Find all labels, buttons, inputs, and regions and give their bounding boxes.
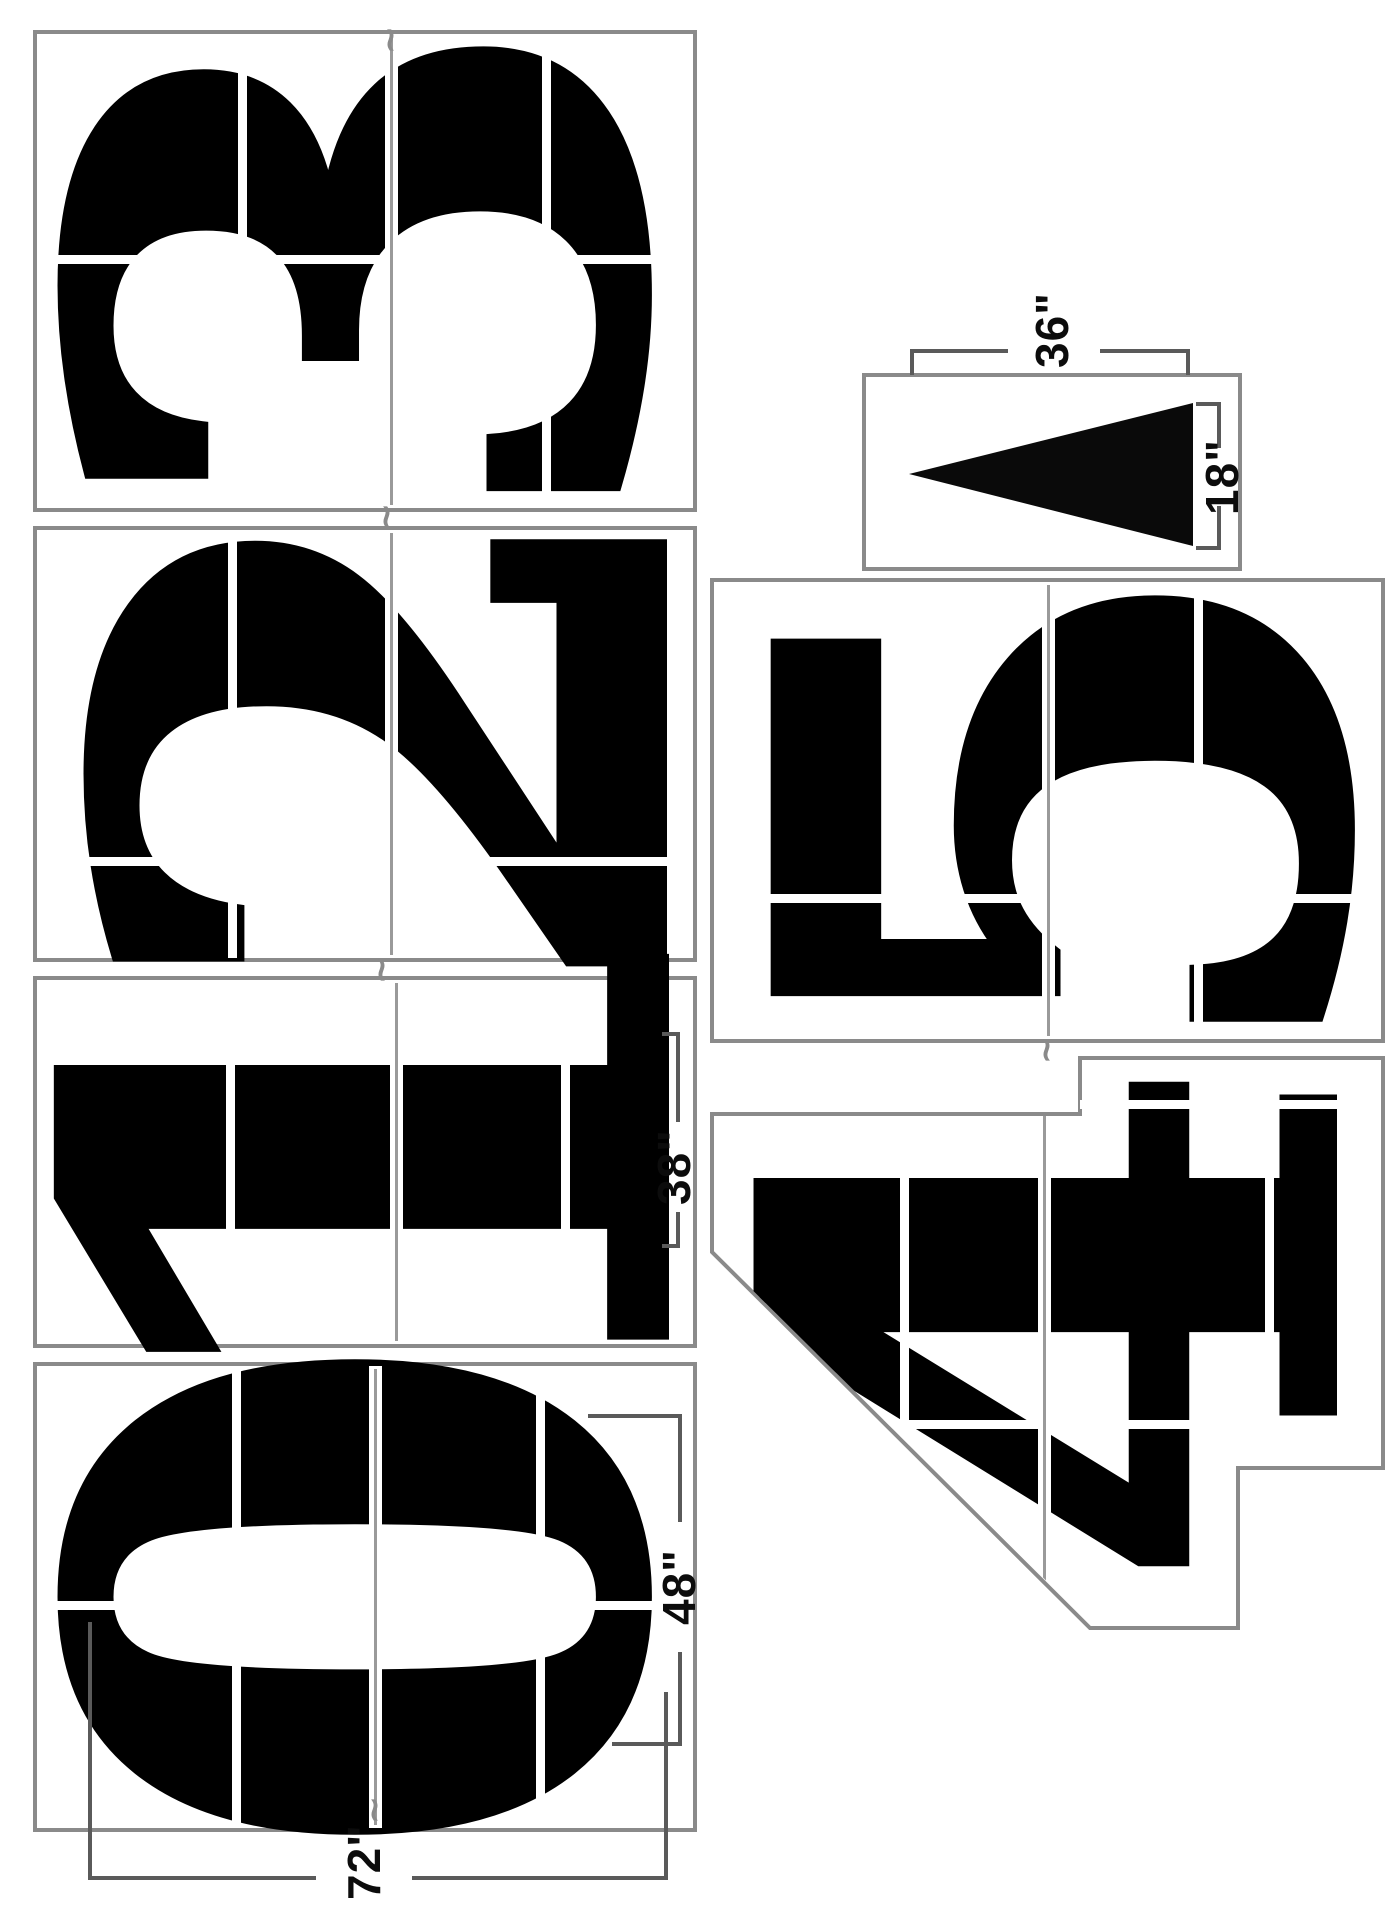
dim-label-numeral-1-width: 38" xyxy=(647,1129,701,1205)
registration-mark: ~ xyxy=(354,1796,394,1825)
stencil-panel-4: 4 xyxy=(710,1056,1385,1632)
dim-label-arrow-length: 36" xyxy=(1025,292,1079,368)
dim-ext-48 xyxy=(588,1414,682,1418)
dim-line-36 xyxy=(1100,349,1190,353)
stencil-bridge-gap xyxy=(226,980,235,1344)
stencil-bridge-gap xyxy=(37,1601,693,1610)
dim-line-38 xyxy=(676,1032,680,1122)
fold-line xyxy=(390,37,393,505)
stencil-panel-5: 5 xyxy=(710,578,1385,1043)
dim-line-48 xyxy=(678,1414,682,1522)
dim-label-arrow-base: 18" xyxy=(1195,439,1249,515)
dim-tick xyxy=(662,1244,680,1248)
stencil-bridge-gap xyxy=(238,34,247,508)
dim-label-numeral-0-width: 48" xyxy=(652,1549,706,1625)
dim-line-38 xyxy=(676,1212,680,1248)
dim-line-36 xyxy=(910,349,1008,353)
stencil-bridge-gap xyxy=(536,1366,545,1828)
stencil-bridge-gap xyxy=(232,1366,241,1828)
stencil-panel-0: 0 xyxy=(33,1362,697,1832)
stencil-kit-diagram: 3 2 1 0 5 xyxy=(0,0,1400,1924)
dim-line-72 xyxy=(88,1876,316,1880)
dim-ext-72 xyxy=(88,1622,92,1880)
dim-tick xyxy=(910,349,914,375)
dim-line-48 xyxy=(678,1652,682,1746)
digit-3: 3 xyxy=(0,3,750,539)
dim-label-numeral-height: 72" xyxy=(337,1824,391,1900)
registration-mark: ~ xyxy=(361,956,401,985)
fold-line xyxy=(374,1369,377,1825)
stencil-bridge-gap xyxy=(542,34,551,508)
dim-ext-48 xyxy=(612,1742,682,1746)
registration-mark: ~ xyxy=(370,26,410,55)
stencil-bridge-gap xyxy=(1194,582,1203,1039)
dim-tick xyxy=(1186,349,1190,375)
fold-line xyxy=(1043,1059,1046,1629)
registration-mark: ~ xyxy=(366,503,406,532)
stencil-bridge-gap xyxy=(37,857,693,866)
fold-line xyxy=(395,983,398,1341)
fold-line xyxy=(1047,585,1050,1036)
stencil-bridge-gap xyxy=(37,255,693,264)
dim-tick xyxy=(662,1032,680,1036)
stencil-panel-arrow xyxy=(862,373,1242,571)
stencil-bridge-gap xyxy=(561,980,570,1344)
dim-tick xyxy=(1196,546,1221,550)
dim-ext-72 xyxy=(664,1692,668,1880)
dim-line-72 xyxy=(412,1876,668,1880)
arrow-left-icon xyxy=(866,377,1238,567)
dim-tick xyxy=(1196,402,1221,406)
stencil-panel-1: 1 xyxy=(33,976,697,1348)
stencil-panel-3: 3 xyxy=(33,30,697,512)
registration-mark: ~ xyxy=(1026,1036,1066,1065)
